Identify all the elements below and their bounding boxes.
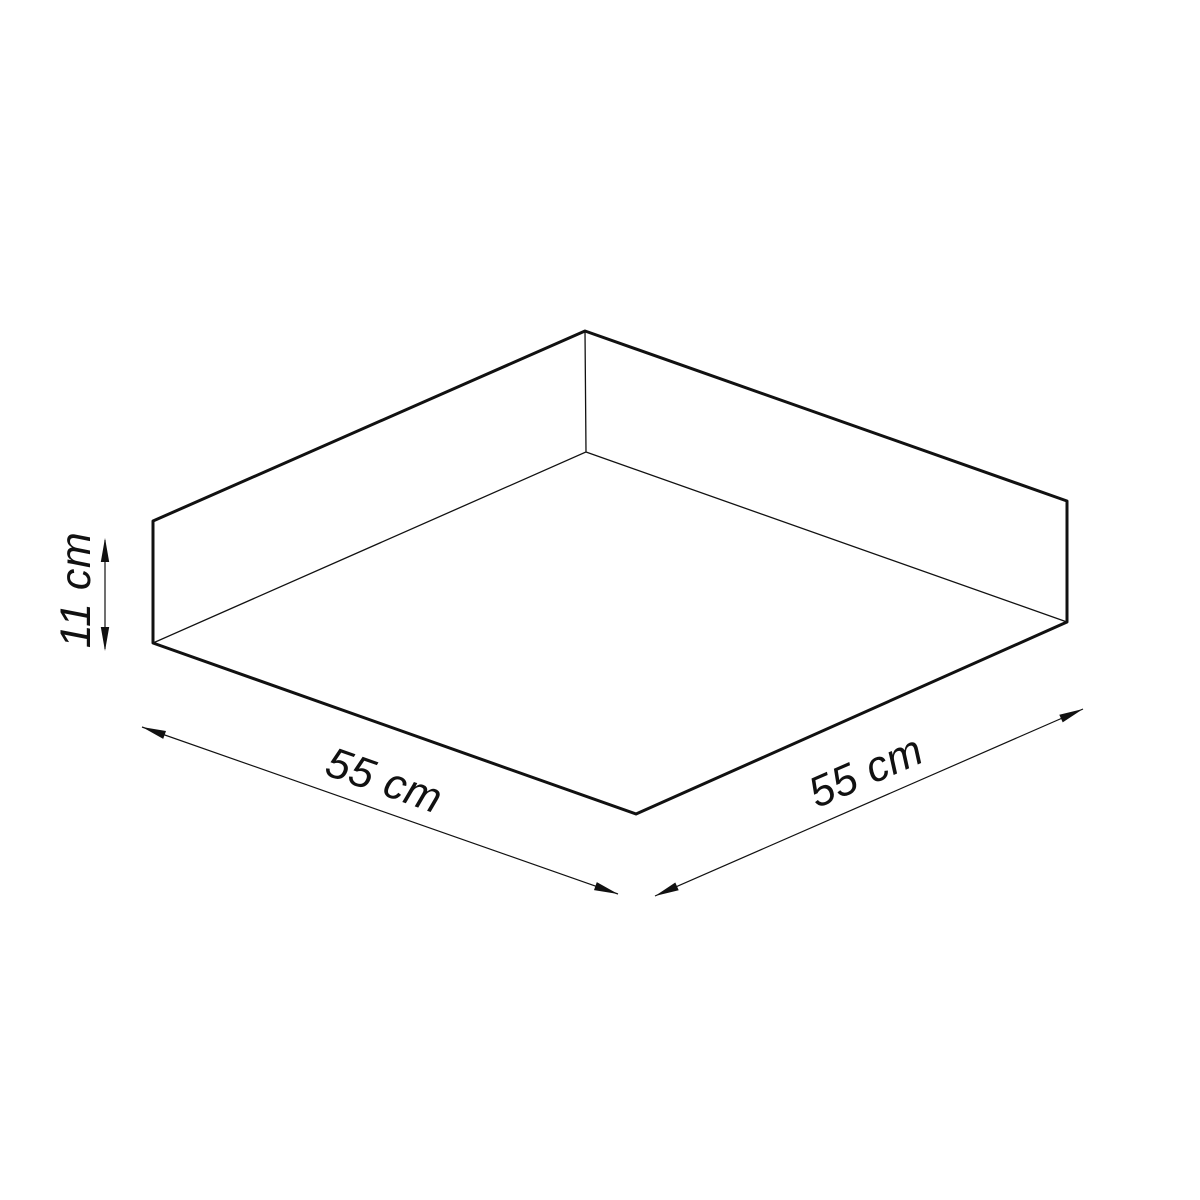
diagram-canvas: 11 cm 55 cm 55 cm (0, 0, 1200, 1200)
dimension-arrowhead (101, 627, 109, 651)
dimension-arrowhead (594, 882, 618, 894)
width-dimension-label: 55 cm (320, 738, 449, 823)
lamp-dimension-diagram: 11 cm 55 cm 55 cm (0, 0, 1200, 1200)
depth-dimension-line (655, 709, 1083, 896)
dimension-arrowhead (142, 727, 166, 739)
dimension-arrowhead (101, 538, 109, 562)
lamp-outer-edges (153, 331, 1067, 814)
width-dimension-line (142, 727, 618, 894)
dimension-arrowhead (1059, 709, 1083, 722)
lamp-inner-edges (153, 331, 1067, 643)
dimension-arrowhead (655, 883, 679, 897)
height-dimension-label: 11 cm (52, 532, 100, 648)
